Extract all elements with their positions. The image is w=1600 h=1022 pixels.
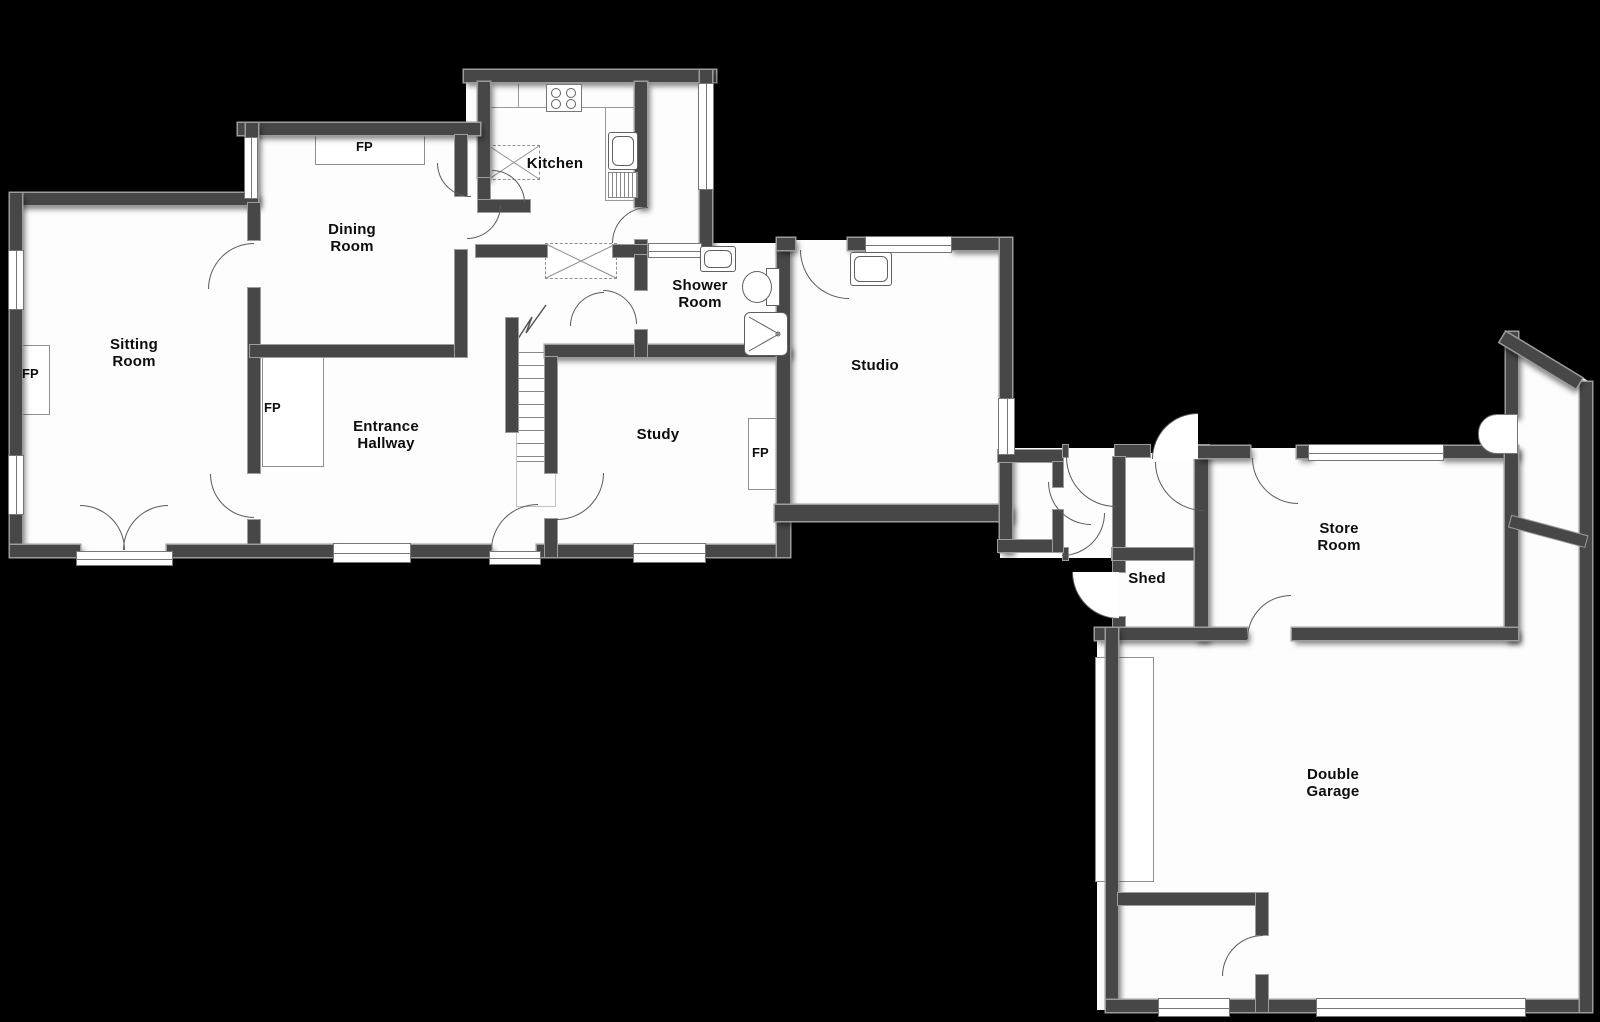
wall xyxy=(1106,1000,1160,1012)
shower-tray-icon xyxy=(744,312,788,356)
fireplace-label-hallway: FP xyxy=(264,400,281,415)
room-label-shower-room: Shower Room xyxy=(650,277,750,311)
door-sill xyxy=(76,551,173,566)
wall xyxy=(1226,1000,1318,1012)
window xyxy=(998,398,1015,455)
door-arc xyxy=(1152,413,1198,459)
garage-door xyxy=(1158,998,1230,1017)
floor-plan: Sitting Room Dining Room Kitchen Shower … xyxy=(0,0,1600,1022)
window xyxy=(244,137,258,199)
room-label-study: Study xyxy=(618,426,698,443)
window xyxy=(865,236,952,253)
wall xyxy=(1292,628,1518,640)
window xyxy=(698,83,714,190)
wall xyxy=(476,245,547,257)
wall xyxy=(506,318,518,432)
wall xyxy=(1000,452,1012,552)
wall xyxy=(635,330,647,357)
wall xyxy=(635,255,647,290)
room-label-shed: Shed xyxy=(1107,570,1187,587)
room-label-sitting-room: Sitting Room xyxy=(74,336,194,370)
room-label-kitchen: Kitchen xyxy=(505,155,605,172)
wall xyxy=(167,545,337,557)
wall xyxy=(1197,446,1250,458)
wall xyxy=(238,123,480,135)
drainer-icon xyxy=(608,172,638,198)
room-label-dining-room: Dining Room xyxy=(292,221,412,255)
wall xyxy=(545,357,557,473)
shower-room-basin-icon xyxy=(700,246,736,272)
window xyxy=(648,243,702,258)
wall xyxy=(545,519,557,557)
wall xyxy=(1106,628,1118,1012)
wall xyxy=(1063,445,1068,457)
fireplace-label-sitting: FP xyxy=(22,366,39,381)
wall xyxy=(1113,548,1207,560)
studio-sink-icon xyxy=(850,252,892,286)
wall xyxy=(248,203,260,240)
window xyxy=(1308,444,1444,461)
room-label-studio: Studio xyxy=(835,357,915,374)
wall xyxy=(455,250,467,357)
wall xyxy=(1505,446,1518,640)
wall xyxy=(10,193,258,205)
room-label-double-garage: Double Garage xyxy=(1283,766,1383,800)
door-sill xyxy=(489,551,541,565)
fireplace-label-study: FP xyxy=(752,445,769,460)
kitchen-sink-icon xyxy=(608,132,638,170)
wall xyxy=(10,545,80,557)
floor-garage xyxy=(1097,630,1589,1010)
wall xyxy=(1256,893,1268,935)
stove-icon xyxy=(546,84,582,112)
door-arc xyxy=(1478,414,1518,454)
wall xyxy=(1118,893,1268,905)
wall xyxy=(1580,382,1592,1012)
wall xyxy=(250,345,467,357)
wall xyxy=(464,70,716,82)
wall xyxy=(248,288,260,473)
garage-door xyxy=(1316,998,1526,1017)
wall xyxy=(777,238,795,250)
window xyxy=(633,543,706,563)
window xyxy=(8,455,24,515)
fireplace-label-dining: FP xyxy=(356,139,373,154)
window xyxy=(333,543,411,563)
chimney-recess-box xyxy=(545,243,617,279)
wall xyxy=(1000,238,1012,398)
window xyxy=(8,250,24,310)
room-label-entrance-hallway: Entrance Hallway xyxy=(326,418,446,452)
wall xyxy=(1256,975,1268,1012)
wall xyxy=(848,238,865,250)
kitchen-counter-edge-left xyxy=(518,84,519,108)
wall xyxy=(1115,445,1150,457)
room-label-store-room: Store Room xyxy=(1289,520,1389,554)
wall xyxy=(405,545,491,557)
wall xyxy=(775,505,1012,521)
garage-side-opening xyxy=(1095,657,1154,882)
